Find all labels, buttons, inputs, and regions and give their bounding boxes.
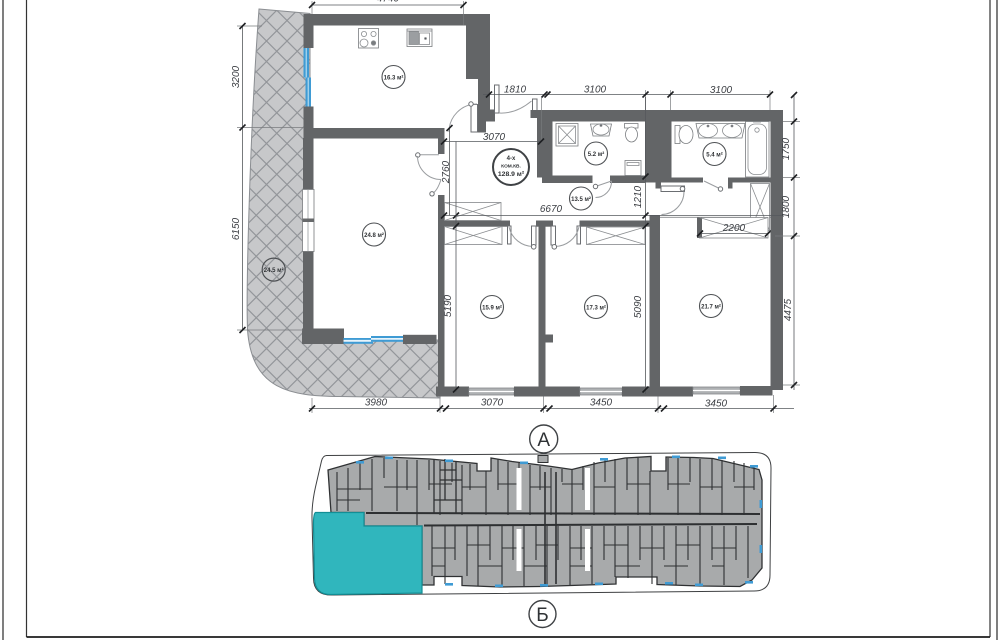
svg-text:3980: 3980 [365, 398, 388, 409]
svg-text:4-х: 4-х [507, 156, 516, 162]
svg-text:5090: 5090 [633, 295, 644, 318]
svg-text:1800: 1800 [781, 195, 792, 218]
svg-text:3070: 3070 [481, 398, 504, 409]
svg-text:5.4 м²: 5.4 м² [706, 152, 722, 159]
svg-text:1210: 1210 [633, 185, 644, 208]
svg-text:17.3 м²: 17.3 м² [586, 305, 606, 312]
svg-text:6670: 6670 [540, 204, 563, 215]
svg-text:3450: 3450 [590, 398, 613, 409]
svg-text:2760: 2760 [441, 160, 452, 184]
svg-text:16.3 м²: 16.3 м² [384, 75, 404, 82]
svg-text:5.2 м²: 5.2 м² [588, 151, 604, 158]
svg-text:13.5 м²: 13.5 м² [571, 196, 591, 203]
svg-text:3200: 3200 [231, 65, 242, 88]
svg-text:24.8 м²: 24.8 м² [364, 232, 384, 239]
svg-text:3070: 3070 [483, 132, 506, 143]
svg-text:1810: 1810 [504, 85, 527, 96]
svg-text:6150: 6150 [231, 217, 242, 240]
svg-text:21.7 м²: 21.7 м² [701, 304, 721, 311]
svg-text:КОМ.КВ.: КОМ.КВ. [501, 164, 521, 170]
svg-text:Б: Б [536, 605, 548, 626]
svg-text:4475: 4475 [783, 298, 794, 321]
svg-text:4740: 4740 [377, 0, 400, 5]
svg-text:3100: 3100 [584, 85, 607, 96]
svg-text:128.9 м²: 128.9 м² [498, 171, 525, 178]
svg-text:24.5 м²: 24.5 м² [264, 267, 284, 274]
svg-text:15.9 м²: 15.9 м² [482, 305, 502, 312]
svg-text:А: А [537, 430, 550, 451]
svg-text:1750: 1750 [781, 137, 792, 160]
svg-text:5190: 5190 [443, 294, 454, 317]
svg-text:3100: 3100 [710, 85, 733, 96]
svg-text:3450: 3450 [705, 399, 728, 410]
svg-text:2200: 2200 [722, 223, 746, 234]
